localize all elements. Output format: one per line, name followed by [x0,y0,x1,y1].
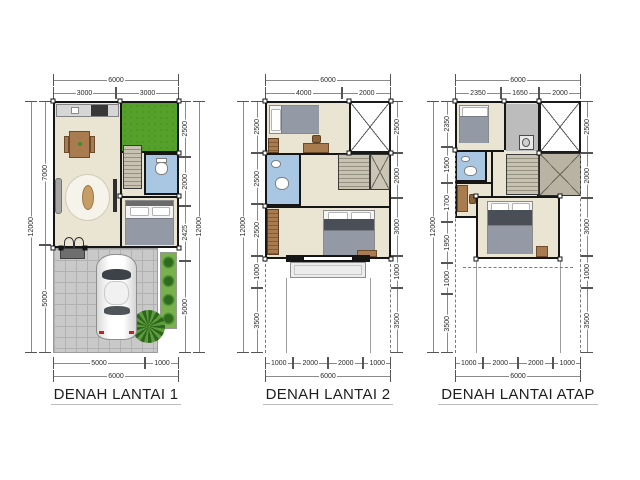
dimension-segment: 2000 [328,357,363,369]
plan2-drawing [265,101,391,353]
coffee-table [82,185,94,210]
car-rear-window [104,306,130,314]
desk-chair [312,135,321,143]
bed-roof-level [487,201,534,255]
floor-plan-1: 6000 30003000 12000 70005000 25002000242… [25,74,207,424]
dimension-segment: 1000 [553,357,581,369]
plan3-title-text: DENAH LANTAI ATAP [438,386,597,405]
hall-wall [120,153,122,195]
dimension-segment: 7000 [39,101,51,245]
balcony-window [303,256,353,261]
column-marker [474,256,479,261]
plan1-title-text: DENAH LANTAI 1 [51,386,182,405]
dimension-label: 1000 [368,360,386,367]
dimension-label: 3000 [394,218,401,236]
plan2-title-text: DENAH LANTAI 2 [263,386,394,405]
dimension-label: 6000 [319,77,337,84]
dimension-label: 5000 [90,360,108,367]
dimension-segment: 4000 [265,87,342,99]
dim-bottom-total: 6000 [53,370,179,382]
dimension-label: 1950 [444,234,451,252]
study-desk [457,185,468,211]
dimension-label: 2000 [394,167,401,185]
dimension-segment: 3500 [441,294,453,353]
dimension-label: 2000 [337,360,355,367]
dimension-label: 3500 [584,312,591,330]
dim-top-segments: 30003000 [53,87,179,99]
dimension-segment: 1000 [441,263,453,294]
bed-headboard [126,201,173,206]
dimension-label: 12000 [196,216,203,237]
column-marker [453,99,458,104]
car-taillight-left [99,331,104,334]
dimension-segment: 2000 [483,357,518,369]
porch-post [82,246,87,251]
nightstand [536,246,549,257]
column-marker [118,99,123,104]
roof-overhang-dashed-line [580,153,581,353]
dimension-segment: 1950 [441,222,453,263]
dimension-segment: 3500 [581,288,593,353]
dimension-label: 1000 [254,263,261,281]
bedroom-wall-horizontal [120,196,179,198]
dimension-segment: 1000 [265,357,293,369]
dimension-label: 12000 [430,216,437,237]
column-marker [177,151,182,156]
dim-left-segments: 70005000 [39,101,51,353]
roof-overhang-dashed-line [455,153,456,353]
dimension-label: 6000 [509,373,527,380]
dimension-segment: 2350 [441,101,453,147]
column-marker [263,204,268,209]
car-taillight-right [129,331,134,334]
roof-slope-panel [539,153,581,195]
dimension-segment: 2000 [342,87,391,99]
sink-icon [71,107,80,114]
dimension-segment: 6000 [265,370,391,382]
dim-right-segments: 2500200024255000 [179,101,191,353]
column-marker [502,99,507,104]
entry-door-arc-left [64,237,74,248]
plan3-drawing [455,101,581,353]
pillow-icon [271,109,281,131]
column-marker [177,245,182,250]
dim-top-total: 6000 [53,74,179,86]
bed-throw [488,210,533,224]
dimension-segment: 6000 [53,370,179,382]
column-marker [347,99,352,104]
dimension-label: 1650 [511,90,529,97]
column-marker [537,151,542,156]
toilet-icon [155,162,168,175]
dimension-label: 6000 [107,77,125,84]
dimension-label: 5000 [42,290,49,308]
plan1-drawing [53,101,179,353]
dim-right-segments: 25002000300010003500 [391,101,403,353]
balcony-inner-line [294,265,363,275]
grid-guide-line [560,259,561,354]
dimension-segment: 3500 [251,288,263,353]
bed-blanket [281,106,319,133]
pillow-icon [152,207,171,216]
dimension-segment: 6000 [265,74,391,86]
dimension-segment: 2500 [251,204,263,256]
column-marker [263,151,268,156]
dimension-label: 2000 [584,167,591,185]
plan2-title: DENAH LANTAI 2 [265,386,391,405]
dimension-segment: 12000 [193,101,205,353]
column-marker [263,99,268,104]
dimension-segment: 2000 [179,157,191,206]
porch-post [58,246,63,251]
pillow-icon [130,207,149,216]
toilet-tank [156,158,167,163]
plot-dashed-line [265,259,266,354]
tv-cabinet [113,179,117,212]
dimension-segment: 2000 [293,357,328,369]
dimension-label: 1000 [460,360,478,367]
dimension-segment: 1500 [441,147,453,183]
dimension-label: 2000 [491,360,509,367]
column-marker [347,151,352,156]
dimension-segment: 1000 [363,357,391,369]
car-windshield [102,269,131,280]
sofa [55,178,63,215]
dimension-segment: 2350 [455,87,501,99]
dimension-segment: 3000 [53,87,116,99]
toilet-icon [275,177,290,190]
sink-icon [461,156,469,163]
dim-top-segments: 40002000 [265,87,391,99]
dimension-label: 3500 [394,312,401,330]
floor-plan-2: 6000 40002000 12000 25002500250010003500… [237,74,405,424]
dimension-label: 3500 [254,312,261,330]
plan1-title: DENAH LANTAI 1 [53,386,179,405]
dimension-segment: 2000 [518,357,553,369]
washer-drum [522,138,530,147]
bathroom-floor1 [144,153,179,195]
column-marker [118,193,123,198]
column-marker [177,99,182,104]
stairs-floor1 [123,145,143,189]
grid-guide-line [476,259,477,354]
bed-front-bedroom [269,105,319,134]
dimension-segment: 1650 [501,87,539,99]
bed-throw [324,219,374,230]
dimension-label: 1500 [444,156,451,174]
dimension-segment: 5000 [53,357,145,369]
dimension-segment: 12000 [25,101,37,353]
dim-top-total: 6000 [265,74,391,86]
bathroom-roof-level [455,150,487,182]
dimension-segment: 2500 [581,101,593,153]
low-cabinet [268,138,280,153]
dimension-label: 2000 [527,360,545,367]
dim-bottom-total: 6000 [455,370,581,382]
dimension-segment: 2500 [251,101,263,153]
dimension-label: 2000 [301,360,319,367]
dimension-label: 1700 [444,194,451,212]
plan3-title: DENAH LANTAI ATAP [455,386,581,405]
dimension-segment: 5000 [39,245,51,353]
dimension-segment: 2500 [251,153,263,205]
void-cross-area [349,101,391,153]
dimension-label: 2500 [182,120,189,138]
dim-left-total: 12000 [25,101,37,353]
dimension-label: 4000 [295,90,313,97]
dimension-label: 2350 [469,90,487,97]
dimension-segment: 3000 [391,198,403,256]
bedroom-wall-vertical [120,196,122,248]
dining-chair-right [90,136,96,154]
dimension-segment: 5000 [179,261,191,353]
dimension-segment: 1000 [581,256,593,288]
dining-chair-left [64,136,70,154]
column-marker [474,193,479,198]
dimension-segment: 2000 [581,153,593,198]
dimension-segment: 6000 [53,74,179,86]
grid-guide-line [286,278,287,353]
dimension-label: 2500 [394,118,401,136]
dimension-label: 2425 [182,224,189,242]
plot-dashed-line [390,259,391,354]
dimension-segment: 1000 [455,357,483,369]
stairs-floor2 [338,154,370,189]
bed-blanket [460,116,488,143]
dimension-segment: 6000 [455,74,581,86]
stair-landing [370,154,390,189]
dimension-label: 6000 [107,373,125,380]
dimension-label: 7000 [42,164,49,182]
interior-wall [349,101,351,153]
dimension-segment: 6000 [455,370,581,382]
palm-tree [132,310,165,343]
column-marker [453,148,458,153]
dimension-label: 3000 [139,90,157,97]
washing-machine-icon [519,135,533,150]
grid-guide-line [370,278,371,353]
dim-right-total: 12000 [193,101,205,353]
stairs-roof-level [506,154,539,195]
roof-ridge-dashed-line [463,267,574,268]
dimension-segment: 3000 [581,198,593,256]
dimension-label: 5000 [182,298,189,316]
dimension-label: 1000 [558,360,576,367]
dimension-label: 12000 [28,216,35,237]
dimension-label: 2000 [182,173,189,191]
dimension-segment: 1700 [441,183,453,222]
dimension-segment: 1000 [251,256,263,288]
dimension-label: 1000 [444,270,451,288]
dimension-label: 2350 [444,115,451,133]
dimension-label: 12000 [240,216,247,237]
column-marker [51,99,56,104]
dimension-segment: 12000 [427,101,439,353]
toilet-icon [464,166,477,176]
dimension-label: 3000 [76,90,94,97]
dimension-label: 6000 [509,77,527,84]
dim-left-total: 12000 [237,101,249,353]
interior-wall [265,206,391,208]
dimension-label: 2500 [254,170,261,188]
dimension-segment: 1000 [145,357,179,369]
stove-icon [91,105,107,116]
drawing-sheet: { "page": { "background": "#ffffff" }, "… [0,0,640,480]
dimension-label: 3000 [584,218,591,236]
balcony-slab [290,262,367,278]
column-marker [389,256,394,261]
bed-floor1 [125,200,174,245]
car-top-view [96,254,136,340]
wardrobe [267,209,279,254]
kitchen-counter [56,104,119,117]
dresser-desk [303,143,329,154]
dim-right-segments: 25002000300010003500 [581,101,593,353]
column-marker [389,99,394,104]
floor-plan-roof: 6000 235016502000 12000 2350150017001950… [427,74,595,424]
void-cross-area [539,101,581,153]
dimension-label: 1000 [153,360,171,367]
interior-wall [455,182,491,184]
dimension-segment: 2425 [179,206,191,261]
dimension-segment: 2500 [179,101,191,157]
bed-attic-bedroom [459,105,489,143]
column-marker [177,193,182,198]
dim-bottom-total: 6000 [265,370,391,382]
column-marker [557,256,562,261]
dim-bottom-segments: 1000200020001000 [455,357,581,369]
column-marker [557,193,562,198]
dimension-segment: 2500 [391,101,403,153]
dimension-segment: 3000 [116,87,179,99]
dimension-label: 6000 [319,373,337,380]
dimension-label: 1000 [394,263,401,281]
dim-left-total: 12000 [427,101,439,353]
dimension-label: 2000 [551,90,569,97]
dim-left-segments: 25002500250010003500 [251,101,263,353]
bed-blanket [126,218,173,245]
dim-top-segments: 235016502000 [455,87,581,99]
dim-bottom-segments: 50001000 [53,357,179,369]
column-marker [389,151,394,156]
dimension-label: 2500 [254,118,261,136]
dimension-label: 1000 [270,360,288,367]
dim-top-total: 6000 [455,74,581,86]
car-roof [104,281,129,304]
dimension-label: 2000 [358,90,376,97]
column-marker [537,99,542,104]
dim-bottom-segments: 1000200020001000 [265,357,391,369]
column-marker [263,256,268,261]
dim-left-segments: 235015001700195010003500 [441,101,453,353]
column-marker [51,245,56,250]
dimension-label: 2500 [254,221,261,239]
dimension-label: 3500 [444,315,451,333]
sink-icon [271,160,280,168]
dimension-segment: 2000 [539,87,581,99]
dimension-segment: 3500 [391,288,403,353]
dimension-segment: 2000 [391,153,403,198]
bathroom-floor2 [265,153,301,206]
bed-blanket [488,225,533,255]
dimension-label: 1000 [584,263,591,281]
dimension-segment: 12000 [237,101,249,353]
dimension-label: 2500 [584,118,591,136]
